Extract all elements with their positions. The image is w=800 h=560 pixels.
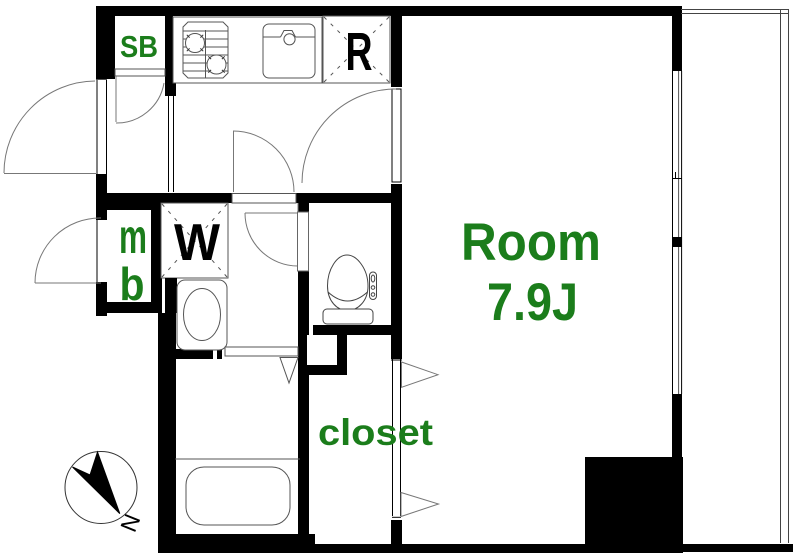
svg-text:R: R	[346, 22, 373, 82]
svg-text:W: W	[174, 214, 221, 272]
svg-text:b: b	[120, 258, 145, 310]
svg-text:SB: SB	[120, 29, 158, 64]
svg-text:m: m	[119, 211, 147, 264]
svg-text:Room: Room	[461, 213, 601, 272]
svg-text:7.9J: 7.9J	[487, 273, 578, 332]
svg-text:closet: closet	[318, 412, 433, 453]
